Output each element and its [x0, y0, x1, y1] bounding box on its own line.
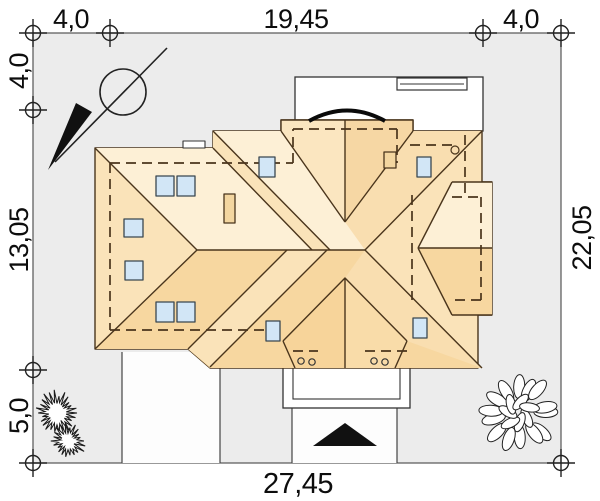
dim-left-middle: 13,05 — [4, 207, 34, 272]
roof-vent — [183, 141, 205, 148]
site-plan: 4,0 19,45 4,0 4,0 13,05 5,0 22,05 27,45 — [0, 0, 600, 501]
dim-top-center: 19,45 — [263, 4, 328, 34]
site-plan-canvas: 4,0 19,45 4,0 4,0 13,05 5,0 22,05 27,45 — [0, 0, 600, 501]
dim-right: 22,05 — [567, 205, 597, 270]
dim-left-top: 4,0 — [4, 53, 34, 89]
dim-bottom: 27,45 — [263, 468, 333, 500]
dim-left-bottom: 5,0 — [4, 398, 34, 434]
dim-top-left: 4,0 — [53, 4, 89, 34]
house-roof — [95, 111, 492, 369]
dim-top-right: 4,0 — [503, 4, 539, 34]
